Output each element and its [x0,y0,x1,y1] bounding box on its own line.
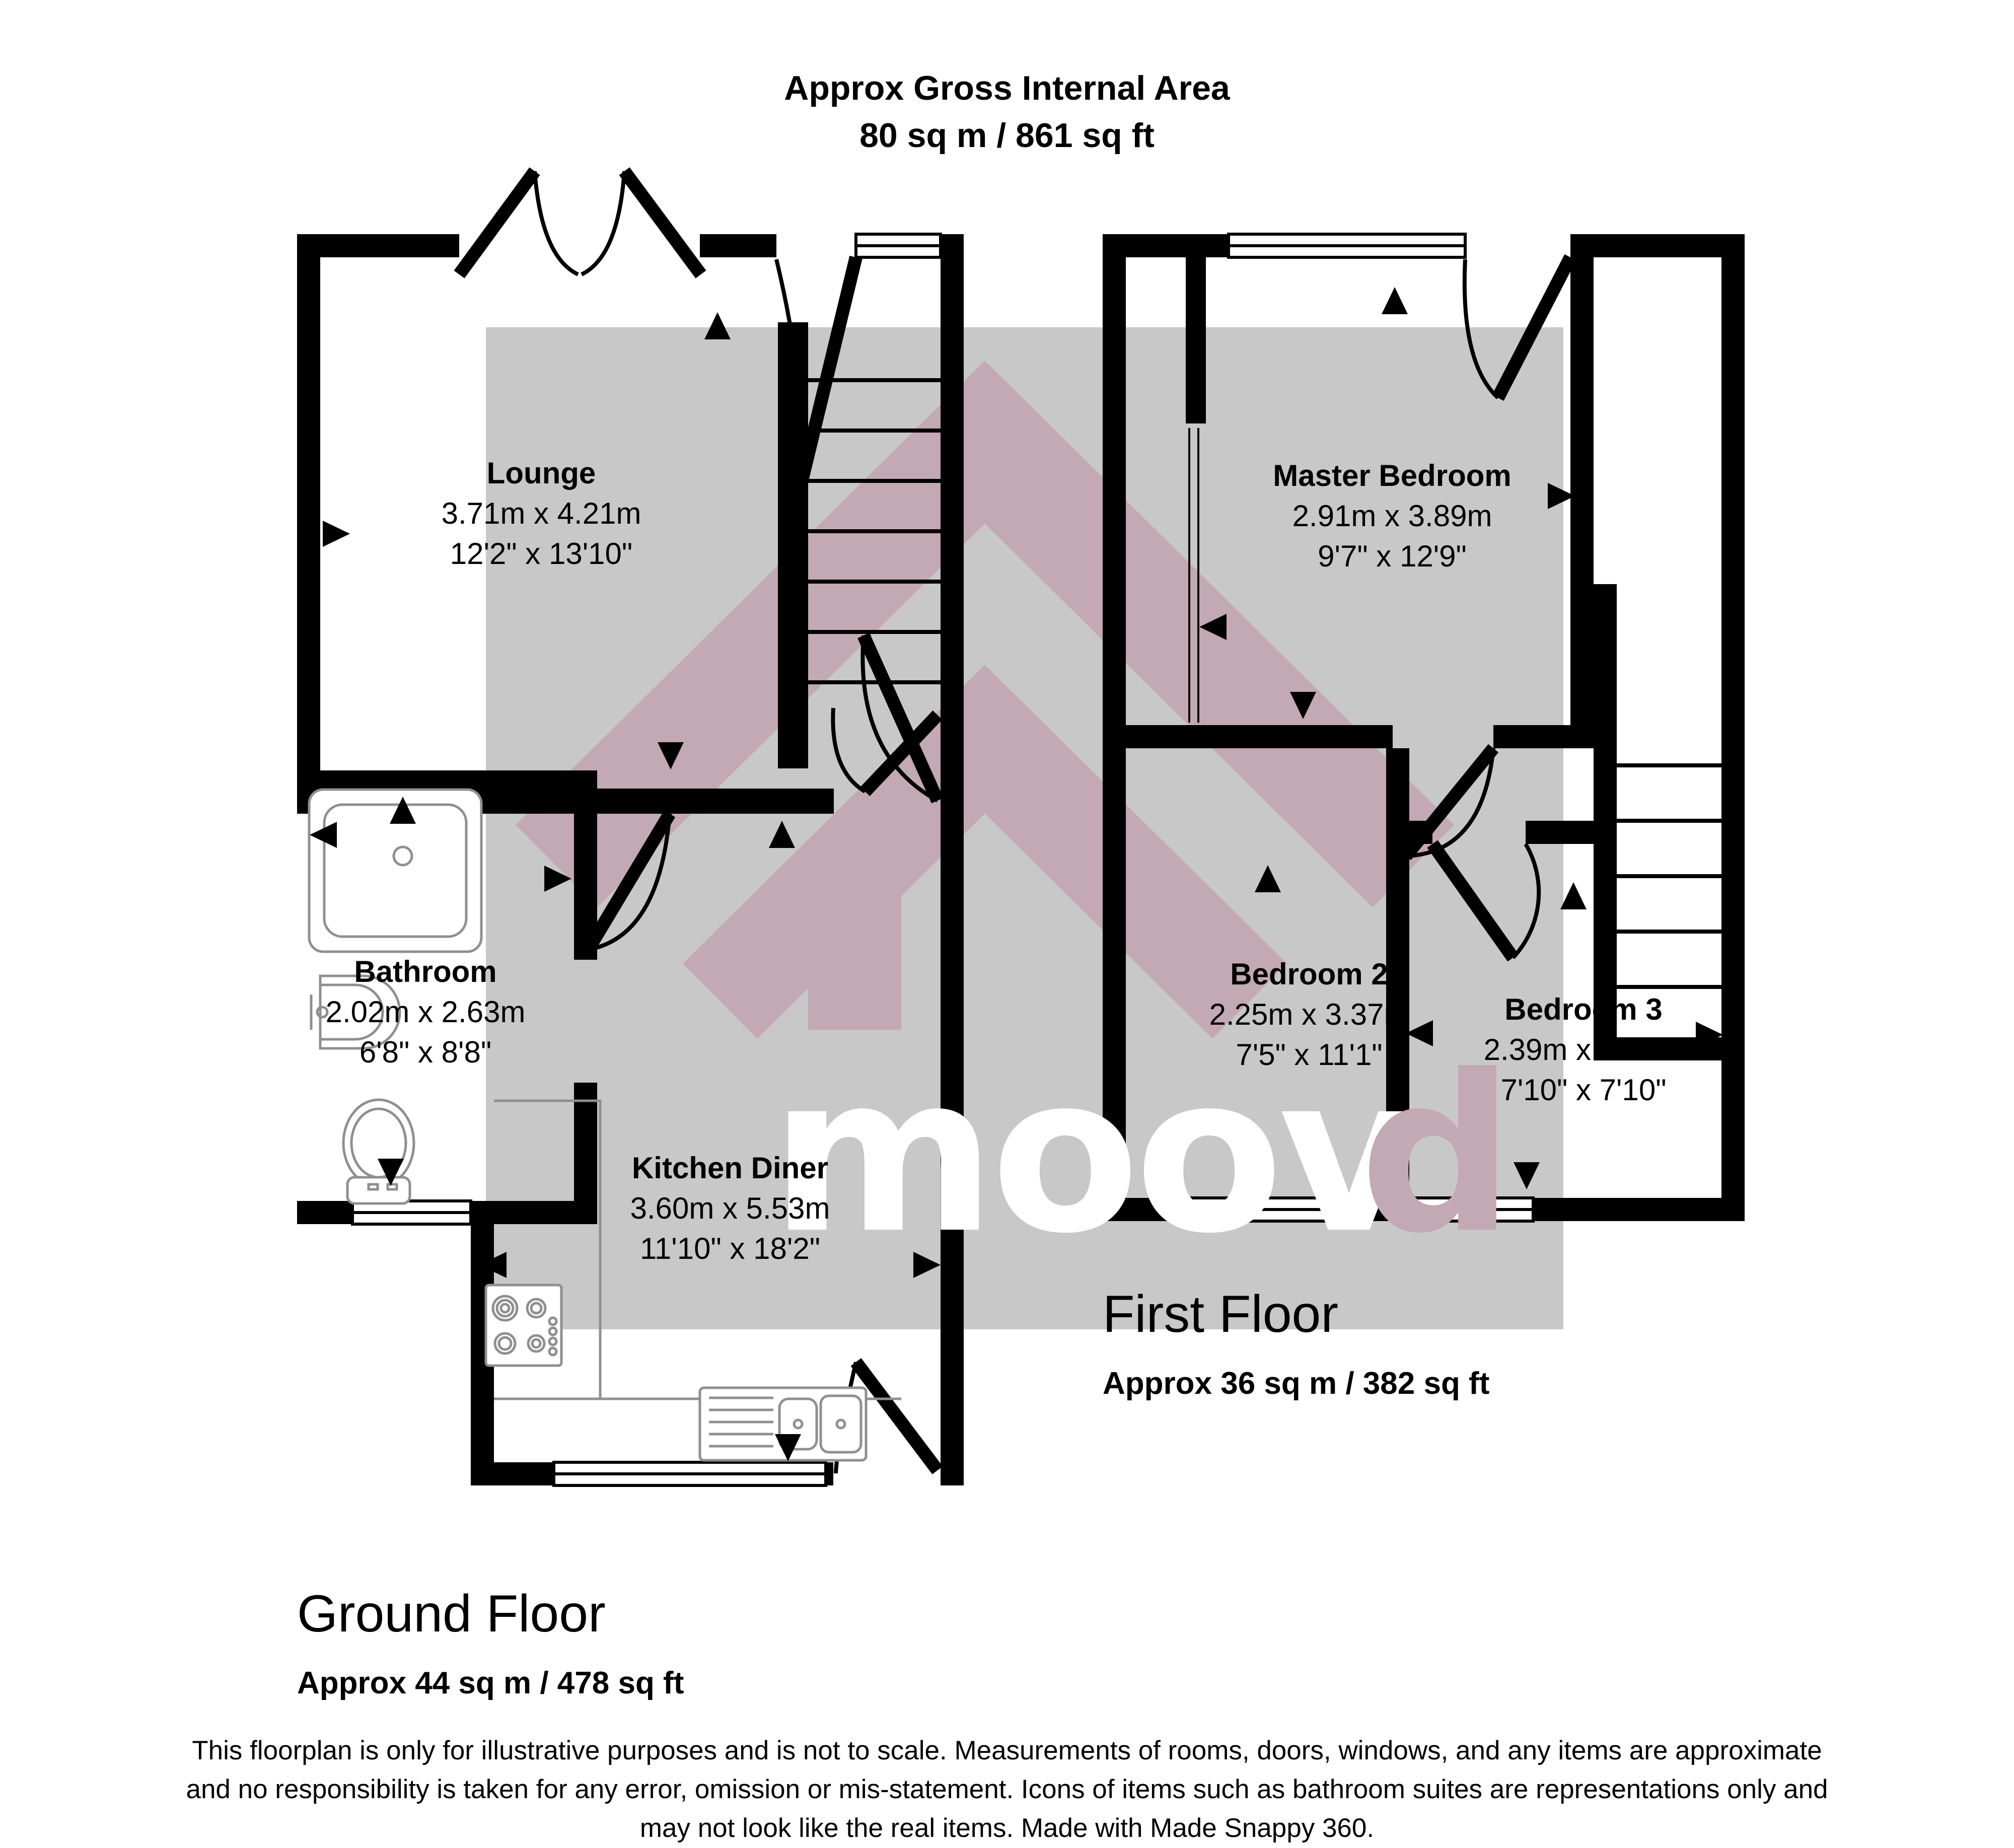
staircase-first-icon [1617,765,1721,987]
moovd-watermark-text: moov d [770,1029,1509,1281]
arrow-right-icon [323,521,350,547]
bay-door-icon [459,171,701,274]
window-icon [554,1462,826,1485]
window-icon [1229,234,1465,257]
hob-icon [486,1285,561,1366]
window-icon [856,234,941,257]
floorplan-page: { "header": { "line1": "Approx Gross Int… [0,0,2014,1848]
watermark-word-white: moov [770,1029,1417,1281]
watermark-word-pink: d [1359,1029,1509,1281]
arrow-up-icon [704,312,731,339]
arrow-up-icon [1382,287,1408,314]
watermark-stem [808,856,901,1030]
floorplan-canvas: moov d [0,0,2014,1848]
basin-icon [311,976,400,1048]
toilet-icon [343,1100,414,1203]
arrow-up-icon [1560,882,1587,909]
